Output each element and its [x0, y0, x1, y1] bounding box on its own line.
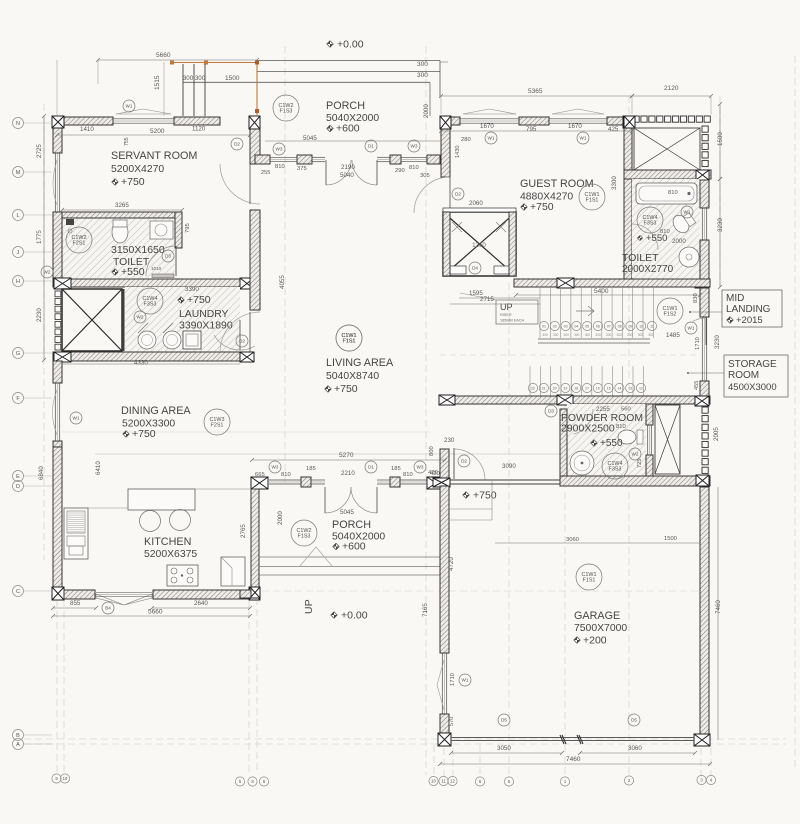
svg-text:2120: 2120: [664, 85, 679, 92]
svg-text:+550: +550: [121, 266, 145, 278]
svg-text:810: 810: [409, 165, 419, 171]
svg-text:300: 300: [638, 333, 644, 337]
svg-text:2060: 2060: [469, 200, 483, 207]
svg-text:810: 810: [281, 472, 291, 478]
svg-text:2000: 2000: [277, 511, 284, 525]
svg-text:7165: 7165: [422, 603, 429, 617]
svg-text:10: 10: [431, 778, 436, 783]
svg-text:W1: W1: [580, 136, 587, 141]
svg-text:300: 300: [195, 75, 206, 82]
svg-text:F2S1: F2S1: [211, 423, 224, 429]
svg-text:7460: 7460: [566, 756, 581, 763]
svg-text:TOILET: TOILET: [622, 252, 659, 264]
svg-text:04: 04: [574, 324, 578, 328]
svg-text:W2: W2: [44, 270, 51, 275]
svg-text:+750: +750: [530, 201, 554, 213]
svg-text:D3: D3: [548, 409, 554, 414]
svg-text:3090: 3090: [502, 463, 516, 470]
svg-text:+0.00: +0.00: [337, 39, 364, 51]
svg-text:09: 09: [628, 324, 632, 328]
svg-text:810: 810: [668, 190, 678, 196]
svg-text:SERVANT ROOM: SERVANT ROOM: [111, 150, 197, 162]
svg-text:+750: +750: [334, 383, 358, 395]
svg-text:1430: 1430: [455, 146, 461, 158]
svg-text:455: 455: [694, 381, 700, 390]
svg-text:H: H: [16, 279, 20, 285]
svg-text:KITCHEN: KITCHEN: [144, 536, 191, 548]
svg-text:17: 17: [585, 386, 589, 390]
svg-text:12: 12: [639, 386, 643, 390]
svg-text:+750: +750: [132, 428, 156, 440]
svg-text:6410: 6410: [95, 461, 102, 475]
svg-text:W3: W3: [276, 147, 283, 152]
svg-text:1410: 1410: [80, 126, 94, 133]
svg-text:J: J: [17, 250, 20, 256]
svg-text:1710: 1710: [450, 673, 456, 686]
svg-text:B4: B4: [105, 606, 111, 611]
svg-text:F1S3: F1S3: [280, 109, 293, 115]
svg-text:PORCH: PORCH: [332, 519, 371, 531]
svg-text:07: 07: [607, 324, 611, 328]
svg-text:D2: D2: [461, 459, 467, 464]
svg-text:F3S3: F3S3: [609, 467, 622, 473]
svg-text:W1: W1: [488, 136, 495, 141]
svg-text:300: 300: [595, 333, 601, 337]
svg-text:3050: 3050: [497, 745, 511, 752]
svg-text:3390: 3390: [185, 286, 199, 293]
svg-text:4500X3000: 4500X3000: [728, 382, 777, 393]
svg-text:L: L: [16, 213, 19, 219]
svg-text:1670: 1670: [480, 123, 494, 130]
svg-text:3230: 3230: [717, 218, 724, 232]
svg-text:300: 300: [606, 333, 612, 337]
svg-text:G: G: [16, 351, 20, 357]
svg-text:18: 18: [574, 386, 578, 390]
svg-text:5200X4270: 5200X4270: [111, 164, 164, 175]
svg-text:D: D: [16, 484, 20, 490]
svg-text:300: 300: [585, 333, 591, 337]
svg-text:725: 725: [637, 459, 643, 468]
svg-text:+550: +550: [600, 438, 623, 449]
svg-text:D1: D1: [368, 465, 374, 470]
svg-text:425: 425: [608, 126, 619, 133]
svg-text:5660: 5660: [148, 609, 163, 616]
svg-text:1710: 1710: [695, 337, 701, 350]
svg-text:GARAGE: GARAGE: [574, 610, 620, 622]
svg-text:E: E: [16, 474, 20, 480]
svg-text:300: 300: [617, 333, 623, 337]
svg-text:D4: D4: [472, 266, 478, 271]
svg-text:M: M: [16, 170, 21, 176]
svg-text:12: 12: [450, 778, 455, 783]
svg-text:19: 19: [563, 386, 567, 390]
svg-text:LAUNDRY: LAUNDRY: [179, 309, 229, 320]
svg-text:1500: 1500: [717, 132, 724, 146]
svg-text:2765: 2765: [240, 524, 247, 538]
svg-text:3150X1650: 3150X1650: [111, 244, 165, 256]
svg-text:+550: +550: [646, 233, 667, 244]
svg-text:W3: W3: [411, 144, 418, 149]
svg-text:1010: 1010: [151, 266, 162, 271]
svg-text:7460: 7460: [715, 600, 722, 614]
svg-text:2725: 2725: [36, 144, 43, 158]
svg-text:F2S1: F2S1: [73, 241, 86, 247]
svg-text:6840: 6840: [38, 466, 45, 480]
svg-text:5660: 5660: [156, 52, 171, 59]
svg-text:W1: W1: [684, 210, 691, 215]
svg-text:F3S3: F3S3: [644, 221, 657, 227]
svg-text:W1: W1: [73, 416, 80, 421]
svg-text:185: 185: [306, 466, 316, 472]
svg-text:+750: +750: [121, 176, 145, 188]
svg-text:830: 830: [693, 293, 699, 303]
svg-text:LANDING: LANDING: [726, 304, 771, 315]
svg-text:B: B: [16, 733, 20, 739]
svg-text:305: 305: [420, 173, 430, 179]
svg-text:570: 570: [449, 717, 455, 726]
svg-text:1485: 1485: [666, 332, 680, 339]
svg-text:800: 800: [429, 446, 435, 456]
svg-text:F1S1: F1S1: [583, 578, 596, 584]
svg-text:F1S2: F1S2: [664, 312, 677, 318]
svg-text:11: 11: [441, 778, 446, 783]
svg-text:C: C: [16, 589, 20, 595]
svg-text:5270: 5270: [339, 452, 354, 459]
svg-text:5040X8740: 5040X8740: [326, 371, 379, 382]
svg-text:280: 280: [461, 137, 471, 143]
svg-text:1120: 1120: [192, 126, 206, 133]
svg-text:3060: 3060: [566, 537, 579, 543]
svg-text:1500: 1500: [664, 536, 677, 542]
svg-text:DINING AREA: DINING AREA: [121, 405, 191, 417]
svg-text:2000X2770: 2000X2770: [622, 264, 674, 275]
svg-text:300: 300: [564, 333, 570, 337]
svg-text:300: 300: [574, 333, 580, 337]
svg-text:810: 810: [616, 424, 626, 430]
svg-text:5040: 5040: [340, 172, 354, 179]
svg-text:5045: 5045: [340, 509, 354, 516]
svg-text:2715: 2715: [480, 296, 494, 303]
svg-text:5200X6375: 5200X6375: [144, 549, 197, 560]
svg-text:2190: 2190: [341, 164, 355, 171]
svg-text:W2: W2: [137, 315, 144, 320]
svg-text:2900X2500: 2900X2500: [561, 423, 615, 435]
svg-text:5400: 5400: [594, 288, 609, 295]
svg-text:N: N: [16, 121, 20, 127]
svg-text:MID: MID: [726, 293, 744, 304]
svg-text:3300: 3300: [611, 176, 618, 190]
svg-text:755: 755: [124, 137, 130, 146]
svg-text:16: 16: [596, 386, 600, 390]
svg-text:3265: 3265: [115, 202, 129, 209]
svg-text:+600: +600: [342, 541, 366, 553]
svg-text:01: 01: [542, 324, 546, 328]
svg-text:300: 300: [542, 333, 548, 337]
svg-text:300: 300: [648, 333, 654, 337]
svg-text:300: 300: [627, 333, 633, 337]
svg-text:UP: UP: [500, 302, 513, 312]
svg-text:1775: 1775: [36, 230, 43, 244]
svg-text:560: 560: [621, 407, 631, 413]
svg-text:F3S3: F3S3: [144, 302, 157, 308]
svg-text:2230: 2230: [36, 308, 43, 322]
svg-text:RISER: RISER: [500, 313, 512, 317]
svg-text:1260: 1260: [472, 242, 486, 249]
svg-text:810: 810: [275, 164, 285, 170]
svg-text:UP: UP: [303, 599, 315, 614]
svg-text:4055: 4055: [279, 275, 286, 289]
svg-text:02: 02: [553, 324, 557, 328]
svg-text:810: 810: [403, 472, 413, 478]
svg-text:D5: D5: [501, 718, 507, 723]
svg-text:300: 300: [553, 333, 559, 337]
svg-text:1515: 1515: [154, 75, 161, 90]
svg-text:W2: W2: [632, 452, 639, 457]
svg-text:+750: +750: [473, 490, 497, 502]
svg-text:375: 375: [297, 166, 307, 172]
svg-text:W3: W3: [417, 465, 424, 470]
svg-text:D2: D2: [239, 339, 245, 344]
svg-text:20: 20: [553, 386, 557, 390]
svg-text:5365: 5365: [528, 88, 543, 95]
svg-text:11: 11: [650, 324, 654, 328]
svg-text:08: 08: [618, 324, 622, 328]
svg-text:+200: +200: [583, 635, 607, 647]
svg-text:10: 10: [639, 324, 643, 328]
svg-text:795: 795: [185, 223, 191, 233]
svg-text:W1: W1: [462, 678, 469, 683]
svg-text:300: 300: [417, 61, 428, 68]
svg-text:15: 15: [607, 386, 611, 390]
svg-text:D5: D5: [631, 718, 637, 723]
svg-text:10: 10: [63, 776, 68, 781]
svg-text:W1: W1: [126, 104, 133, 109]
svg-text:300: 300: [183, 75, 194, 82]
svg-text:165MM EACH: 165MM EACH: [500, 319, 525, 323]
svg-text:D2: D2: [455, 192, 461, 197]
svg-text:795: 795: [526, 126, 537, 133]
svg-text:3060: 3060: [628, 745, 642, 752]
svg-text:1500: 1500: [225, 75, 240, 82]
svg-text:F1S1: F1S1: [586, 198, 599, 204]
svg-text:14: 14: [617, 386, 621, 390]
svg-text:13: 13: [628, 386, 632, 390]
svg-text:D2: D2: [234, 142, 240, 147]
svg-text:05: 05: [585, 324, 589, 328]
svg-text:855: 855: [70, 600, 81, 607]
svg-text:2640: 2640: [194, 600, 208, 607]
svg-text:+0.00: +0.00: [341, 610, 368, 622]
svg-text:2255: 2255: [596, 406, 610, 413]
svg-text:LIVING AREA: LIVING AREA: [326, 357, 394, 369]
svg-text:230: 230: [444, 437, 455, 444]
svg-text:2000: 2000: [423, 104, 430, 118]
svg-text:7500X7000: 7500X7000: [574, 623, 627, 634]
svg-text:2005: 2005: [713, 427, 720, 441]
svg-text:290: 290: [395, 168, 405, 174]
svg-text:300: 300: [417, 72, 428, 79]
svg-text:W1: W1: [688, 326, 695, 331]
svg-text:5200: 5200: [150, 128, 165, 135]
svg-text:255: 255: [261, 170, 270, 176]
svg-text:1670: 1670: [568, 123, 582, 130]
svg-text:+750: +750: [187, 294, 211, 306]
svg-text:21: 21: [542, 386, 546, 390]
svg-text:03: 03: [564, 324, 568, 328]
svg-text:D3: D3: [165, 254, 171, 259]
svg-text:A: A: [16, 742, 20, 748]
svg-text:185: 185: [391, 466, 401, 472]
svg-text:2000: 2000: [672, 238, 686, 245]
svg-text:PORCH: PORCH: [326, 100, 365, 112]
svg-text:3230: 3230: [714, 335, 721, 349]
svg-text:4330: 4330: [134, 360, 148, 367]
svg-text:+2015: +2015: [736, 315, 763, 326]
svg-text:STORAGE: STORAGE: [728, 359, 777, 370]
svg-text:665: 665: [255, 472, 265, 478]
svg-text:F1S1: F1S1: [343, 339, 356, 345]
svg-text:+600: +600: [336, 123, 360, 135]
svg-text:ROOM: ROOM: [728, 370, 759, 381]
svg-text:F1S3: F1S3: [298, 534, 311, 540]
svg-text:22: 22: [531, 386, 535, 390]
svg-text:D1: D1: [368, 144, 374, 149]
svg-text:3390X1890: 3390X1890: [179, 320, 233, 332]
svg-text:420: 420: [430, 471, 440, 477]
svg-text:06: 06: [596, 324, 600, 328]
svg-text:2210: 2210: [341, 470, 355, 477]
svg-text:4720: 4720: [448, 557, 455, 571]
svg-text:W3: W3: [272, 465, 279, 470]
